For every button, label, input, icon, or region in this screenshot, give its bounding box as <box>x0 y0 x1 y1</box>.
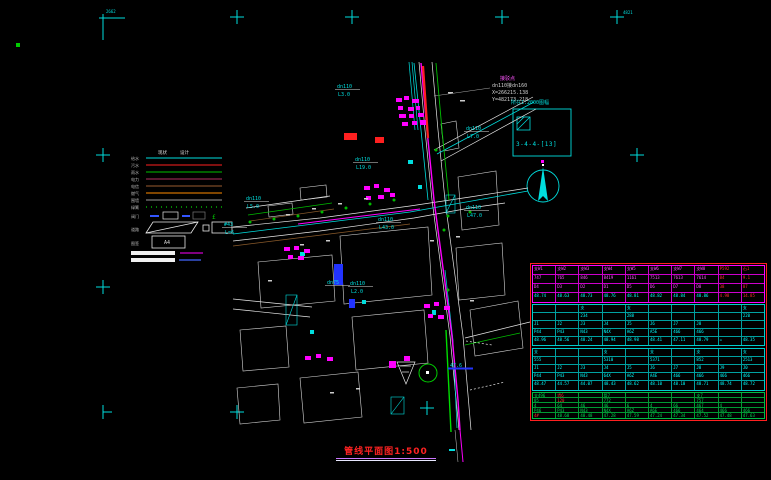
table-cell: 支W8 <box>695 266 718 275</box>
table-cell: D2 <box>579 284 602 293</box>
table-cell: 8419 <box>603 275 626 284</box>
table-cell: 765 <box>556 275 579 284</box>
scale-bar-2 <box>131 258 175 262</box>
svg-text:L43.0: L43.0 <box>379 225 394 231</box>
table-cell: = <box>719 337 742 345</box>
table-cell: J5 <box>626 321 649 329</box>
map-road-lines <box>233 62 536 430</box>
table-cell: 14.85 <box>742 293 764 302</box>
table-cell <box>719 349 742 357</box>
svg-text:dn110: dn110 <box>350 281 365 287</box>
svg-text:dn110: dn110 <box>355 157 370 163</box>
table-cell: N4X <box>603 329 626 337</box>
table-cell: J7 <box>672 321 695 329</box>
connection-note-title: 接驳点 <box>500 75 515 82</box>
table-cell <box>719 321 742 329</box>
north-needle <box>538 167 548 201</box>
svg-text:L47.0: L47.0 <box>467 213 482 219</box>
legend-scale-bars <box>131 251 203 262</box>
sheet-reference-box: 所在1:2000图幅 3-4-4-[13] <box>511 99 571 156</box>
table-row: 支W1支W2支W3支W4支W5支W6支W7支W8P592石1 <box>533 266 764 275</box>
table-row: 48.4744.5744.0748.4348.6248.1048.1048.71… <box>533 381 764 389</box>
legend-row-label: 电信 <box>131 183 139 189</box>
connection-note: 接驳点 dn110接dn160 X=266215.138 Y=482173.21… <box>434 75 528 103</box>
map-building-outlines <box>237 121 523 424</box>
table-cell: J3 <box>579 365 602 373</box>
table-cell: 7513 <box>649 275 672 284</box>
table-row: 48.7448.6348.7348.7648.8148.8248.8448.86… <box>533 293 764 302</box>
table-cell: 7613 <box>672 275 695 284</box>
table-cell: J4 <box>603 321 626 329</box>
table-cell: J2 <box>556 321 579 329</box>
table-cell: J4 <box>603 365 626 373</box>
table-cell <box>719 313 742 321</box>
table-cell: 5310 <box>603 357 626 365</box>
table-cell <box>742 321 764 329</box>
legend-col-header-existing: 现状 <box>158 149 167 156</box>
table-cell: 48.74 <box>719 381 742 389</box>
table-row: J1J2J3J4J5J6J7J8J9J0 <box>533 365 764 373</box>
frame-green-dot <box>16 43 20 47</box>
legend-frame-row-label: 图签 <box>131 240 139 246</box>
table-cell: 支 <box>742 305 764 313</box>
a4-frame-label: A4 <box>164 240 170 246</box>
svg-text:L19.0: L19.0 <box>356 165 371 171</box>
pipe-label: dn110L19.0 <box>353 157 378 171</box>
table-cell: 48.76 <box>603 293 626 302</box>
table-cell <box>649 305 672 313</box>
table-cell: 87 <box>742 284 764 293</box>
table-cell: D6 <box>649 284 672 293</box>
table-section-3: 支496墙6管7支785120772757464464664664674P46P… <box>532 392 765 419</box>
pipe-label: 47.6 <box>448 363 473 369</box>
table-cell <box>672 349 695 357</box>
sheet-ref-frame <box>513 109 571 156</box>
table-cell: 支 <box>579 305 602 313</box>
table-cell <box>556 349 579 357</box>
svg-text:L3.0: L3.0 <box>338 92 350 98</box>
table-cell: 466 <box>672 329 695 337</box>
table-cell: 支 <box>626 305 649 313</box>
table-cell: 48.41 <box>649 337 672 345</box>
north-tip-mark <box>541 160 544 163</box>
table-cell: 47.28 <box>603 413 626 418</box>
table-cell: P43 <box>556 373 579 381</box>
connection-note-x: X=266215.138 <box>492 90 528 96</box>
table-cell: 4# <box>533 413 556 418</box>
table-cell: 47.34 <box>672 413 695 418</box>
table-cell: 47.52 <box>695 413 718 418</box>
table-cell: J8 <box>695 365 718 373</box>
table-cell: 支 <box>649 349 672 357</box>
table-cell: 47.59 <box>626 413 649 418</box>
box-symbol-2 <box>193 212 205 219</box>
legend-road-row-label: 道路 <box>131 226 139 232</box>
table-cell: 48.43 <box>603 381 626 389</box>
table-cell: 支W4 <box>603 266 626 275</box>
table-cell: 466 <box>742 373 764 381</box>
table-cell <box>533 313 556 321</box>
table-row: 555531053718522513 <box>533 357 764 365</box>
table-cell: 48.71 <box>695 381 718 389</box>
small-square-symbol <box>203 225 209 231</box>
table-cell: A6Z <box>626 373 649 381</box>
svg-text:#43: #43 <box>224 222 233 228</box>
table-row: 支支支 <box>533 305 764 313</box>
north-arrow <box>527 160 559 202</box>
table-cell <box>719 329 742 337</box>
table-cell: 48.35 <box>742 337 764 345</box>
table-cell: 47.24 <box>649 413 672 418</box>
svg-text:dn110: dn110 <box>378 217 393 223</box>
grid-coordinate-label-right: 4821 <box>623 10 633 15</box>
table-cell: 48.62 <box>626 381 649 389</box>
table-cell: 852 <box>695 357 718 365</box>
table-cell: 220 <box>742 313 764 321</box>
table-cell: 48.63 <box>556 293 579 302</box>
table-cell: 466 <box>695 329 718 337</box>
table-cell <box>695 305 718 313</box>
legend-symbol-row-label: 阀门 <box>131 213 139 219</box>
hatch-line-2 <box>517 117 524 124</box>
valve-glyph: £ <box>212 214 216 221</box>
table-section-2: 支支支支支555531053718522513J1J2J3J4J5J6J7J8J… <box>532 348 765 391</box>
table-cell: J2 <box>556 365 579 373</box>
pipe-label: dn110L43.0 <box>376 217 401 231</box>
table-cell: A4E <box>649 373 672 381</box>
connection-note-leader <box>434 88 490 96</box>
table-cell: 48.47 <box>533 381 556 389</box>
title-underline-2 <box>336 460 436 461</box>
table-cell: J0 <box>742 365 764 373</box>
table-cell: 47.63 <box>742 413 764 418</box>
table-cell: 48.68 <box>556 413 579 418</box>
svg-text:L=6: L=6 <box>225 230 234 236</box>
table-row: J1J2J3J4J5J6J7J8 <box>533 321 764 329</box>
table-section-0: 支W1支W2支W3支W4支W5支W6支W7支W8P592石17477658468… <box>532 265 765 303</box>
table-row: 74776584684191161751376137614849.1 <box>533 275 764 284</box>
north-tip-dot <box>542 164 544 166</box>
table-cell: 48.96 <box>533 337 556 345</box>
table-cell: 9.1 <box>742 275 764 284</box>
table-cell: 466 <box>695 373 718 381</box>
table-cell <box>649 313 672 321</box>
node-elevation-table: 支W1支W2支W3支W4支W5支W6支W7支W8P592石17477658468… <box>530 263 767 421</box>
table-cell <box>603 313 626 321</box>
table-cell <box>742 329 764 337</box>
table-cell: D3 <box>556 284 579 293</box>
table-cell <box>719 357 742 365</box>
table-cell: J6 <box>649 321 672 329</box>
legend-row-label: 燃气 <box>131 190 139 196</box>
sheet-ref-number: 3-4-4-[13] <box>516 141 557 148</box>
svg-text:L7.0: L7.0 <box>467 134 479 140</box>
table-cell: 44.07 <box>579 381 602 389</box>
table-cell: 48.98 <box>626 337 649 345</box>
table-cell: 支 <box>603 349 626 357</box>
table-cell: P592 <box>719 266 742 275</box>
table-cell: J8 <box>695 321 718 329</box>
table-cell: 47.11 <box>672 337 695 345</box>
sheet-title: 管线平面图1:500 <box>336 444 436 457</box>
table-cell: J9 <box>719 365 742 373</box>
table-cell: P44 <box>533 373 556 381</box>
table-cell <box>719 305 742 313</box>
table-cell: 64X <box>603 373 626 381</box>
table-cell: 石1 <box>742 266 764 275</box>
svg-text:dn110: dn110 <box>337 84 352 90</box>
table-cell: D5 <box>626 284 649 293</box>
table-cell: 7614 <box>695 275 718 284</box>
pipe-label: dn110L5.0 <box>244 196 269 210</box>
svg-text:dn110: dn110 <box>466 126 481 132</box>
table-cell: 466 <box>672 373 695 381</box>
legend-row-label: 电力 <box>131 176 139 182</box>
table-cell: 84 <box>719 275 742 284</box>
red-pipe-segment <box>423 66 428 138</box>
table-cell: 48.73 <box>579 293 602 302</box>
road-symbol-diagonal <box>146 222 198 233</box>
table-cell <box>626 357 649 365</box>
table-cell: 支W6 <box>649 266 672 275</box>
table-cell <box>556 357 579 365</box>
red-annotation-block <box>344 133 357 140</box>
pipe-label: dn110L3.0 <box>335 84 360 98</box>
table-section-1: 支支支234288220J1J2J3J4J5J6J7J8P44P43N43N4X… <box>532 304 765 346</box>
legend: 现状 设计 给水污水雨水电力电信燃气围墙绿篱 阀门 £ 道路 图签 A4 <box>131 149 232 262</box>
table-cell <box>533 305 556 313</box>
svg-text:L2.0: L2.0 <box>351 289 363 295</box>
table-cell: D1 <box>603 284 626 293</box>
table-cell: 48.10 <box>649 381 672 389</box>
table-row: 234288220 <box>533 313 764 321</box>
table-cell: N43 <box>579 329 602 337</box>
table-cell: 846 <box>579 275 602 284</box>
table-cell: D8 <box>695 284 718 293</box>
table-cell: P44 <box>533 329 556 337</box>
grid-coordinate-label-left: 2662 <box>106 9 116 14</box>
cad-canvas[interactable]: 2662 4821 现状 设计 给水污水雨水电力电信燃气围墙绿篱 阀门 £ 道路… <box>0 0 771 480</box>
table-cell: A6Z <box>626 329 649 337</box>
table-cell: 支 <box>742 349 764 357</box>
table-cell: 支W3 <box>579 266 602 275</box>
table-cell: 支W7 <box>672 266 695 275</box>
table-cell: 支 <box>533 349 556 357</box>
table-cell <box>672 313 695 321</box>
table-row: 支支支支支 <box>533 349 764 357</box>
pipe-label: dn110L2.0 <box>348 281 373 295</box>
table-row: 4#48.6848.4847.2847.5947.2447.3447.5247.… <box>533 413 764 418</box>
table-cell: 48.79 <box>695 337 718 345</box>
table-cell: J3 <box>579 321 602 329</box>
table-cell: 288 <box>626 313 649 321</box>
table-cell: 支W2 <box>556 266 579 275</box>
table-cell <box>603 305 626 313</box>
table-row: P44P43N43N4XA6ZA5E466466 <box>533 329 764 337</box>
legend-road-row: 道路 <box>131 222 232 233</box>
table-cell <box>672 305 695 313</box>
table-cell: 4.98 <box>719 293 742 302</box>
frame-corner-bracket <box>99 14 125 40</box>
box-symbol <box>163 212 178 219</box>
table-cell: 47.48 <box>719 413 742 418</box>
table-cell: 48.81 <box>626 293 649 302</box>
table-cell: J7 <box>672 365 695 373</box>
legend-col-header-design: 设计 <box>180 149 189 156</box>
title-block: 管线平面图1:500 <box>336 444 436 461</box>
table-cell: 1161 <box>626 275 649 284</box>
table-cell: 466 <box>719 373 742 381</box>
table-cell <box>672 357 695 365</box>
legend-row-label: 污水 <box>131 162 139 168</box>
table-cell: J1 <box>533 321 556 329</box>
table-cell: 44.57 <box>556 381 579 389</box>
table-cell: 234 <box>579 313 602 321</box>
table-cell: J6 <box>649 365 672 373</box>
table-row: D4D3D2D1D5D6D7D83887 <box>533 284 764 293</box>
table-cell: P43 <box>556 329 579 337</box>
svg-text:L5.0: L5.0 <box>247 204 259 210</box>
table-cell: A5E <box>649 329 672 337</box>
table-cell: 48.48 <box>579 413 602 418</box>
table-cell: 5371 <box>649 357 672 365</box>
table-cell <box>695 313 718 321</box>
table-cell: J1 <box>533 365 556 373</box>
table-cell: D4 <box>533 284 556 293</box>
title-underline-1 <box>336 458 436 459</box>
table-cell: 支 <box>695 349 718 357</box>
table-cell <box>579 349 602 357</box>
table-cell <box>579 357 602 365</box>
pipe-label: dn75 <box>325 280 350 286</box>
table-cell <box>626 349 649 357</box>
legend-row-label: 给水 <box>131 155 139 161</box>
legend-symbol-row: 阀门 £ <box>131 212 216 221</box>
connection-note-pipe: dn110接dn160 <box>492 82 527 89</box>
table-cell: D7 <box>672 284 695 293</box>
legend-frame-row: 图签 A4 <box>131 236 185 248</box>
table-cell: 48.10 <box>672 381 695 389</box>
map-symbols <box>249 92 475 451</box>
table-cell: 48.86 <box>695 293 718 302</box>
table-cell: 555 <box>533 357 556 365</box>
table-cell: J5 <box>626 365 649 373</box>
svg-text:dn110: dn110 <box>246 196 261 202</box>
table-cell: 48.24 <box>579 337 602 345</box>
table-cell <box>556 313 579 321</box>
table-row: 48.9648.5648.2448.9448.9848.4147.1148.79… <box>533 337 764 345</box>
cyan-fitting-marks <box>300 160 455 451</box>
table-row: P44P43N4364XA6ZA4E466466466466 <box>533 373 764 381</box>
table-cell: N43 <box>579 373 602 381</box>
legend-row-label: 雨水 <box>131 169 139 175</box>
table-cell <box>556 305 579 313</box>
svg-text:dn75: dn75 <box>327 280 339 286</box>
table-cell: 支W5 <box>626 266 649 275</box>
table-cell: 48.74 <box>533 293 556 302</box>
table-cell: 支W1 <box>533 266 556 275</box>
table-cell: 48.82 <box>649 293 672 302</box>
table-cell: 2513 <box>742 357 764 365</box>
table-cell: 48.84 <box>672 293 695 302</box>
connection-note-y: Y=482173.218 <box>492 97 528 103</box>
legend-row-label: 围墙 <box>131 197 139 203</box>
map-pipelines <box>233 62 534 462</box>
table-cell: 38 <box>719 284 742 293</box>
legend-row-label: 绿篱 <box>131 204 139 210</box>
legend-line-rows: 给水污水雨水电力电信燃气围墙绿篱 <box>131 155 222 210</box>
svg-text:dn110: dn110 <box>466 205 481 211</box>
table-cell: 48.94 <box>603 337 626 345</box>
hatch-line-1 <box>517 117 530 130</box>
table-cell: 48.56 <box>556 337 579 345</box>
table-cell: 747 <box>533 275 556 284</box>
scale-bar-1 <box>131 251 175 255</box>
pipe-label: dn110L47.0 <box>464 205 489 219</box>
table-cell: 48.72 <box>742 381 764 389</box>
